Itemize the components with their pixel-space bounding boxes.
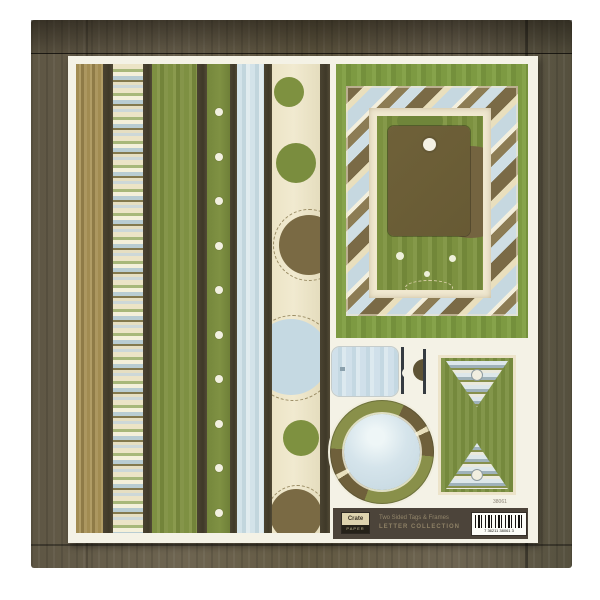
striped-triangle-up: [446, 443, 508, 489]
paper-sheet: 38061 Crate PAPER Two Sided Tags & Frame…: [68, 56, 538, 543]
product-photo: 38061 Crate PAPER Two Sided Tags & Frame…: [0, 0, 600, 600]
wood-top-plank: [31, 20, 572, 54]
white-dot: [449, 255, 456, 262]
stripe-horizontal-band: [113, 64, 143, 533]
stripe-brown: [264, 64, 272, 533]
white-dot: [215, 464, 223, 472]
stripes-panel: [76, 64, 330, 533]
white-dot: [215, 331, 223, 339]
framed-tag-block: [336, 64, 528, 338]
brown-tag: [388, 126, 470, 236]
stripe-green-dotted: [207, 64, 230, 533]
white-dot: [215, 153, 223, 161]
stripe-brown: [230, 64, 237, 533]
barcode: 7 36211 38061 3: [472, 513, 526, 535]
tag-hole: [472, 470, 482, 480]
brand-subname: PAPER: [342, 525, 369, 533]
circle-green: [276, 143, 316, 183]
stripe-tan: [76, 64, 103, 533]
stripe-brown: [143, 64, 152, 533]
stripe-blue: [237, 64, 264, 533]
barcode-digits: 7 36211 38061 3: [472, 528, 526, 533]
tag-hole: [472, 370, 482, 380]
dashed-ellipse: [405, 280, 453, 290]
white-dot: [215, 108, 223, 116]
white-dot: [215, 509, 223, 517]
blue-tag: [332, 347, 398, 396]
stripe-brown: [103, 64, 113, 533]
tag-mark: [340, 367, 345, 371]
tab-divider-line: [423, 349, 426, 394]
white-dot: [396, 252, 404, 260]
label-strip: Crate PAPER Two Sided Tags & Frames LETT…: [333, 508, 528, 539]
collection-name: LETTER COLLECTION: [379, 524, 460, 530]
striped-triangle-down: [446, 361, 508, 407]
barcode-bars: [475, 515, 523, 528]
stripe-cream-circles: [272, 64, 320, 533]
circle-green: [283, 420, 319, 456]
tag-hole: [423, 138, 436, 151]
stripe-brown: [197, 64, 207, 533]
ring-ornament: [330, 400, 434, 504]
wood-seam-bottom: [31, 544, 572, 546]
stripe-brown: [320, 64, 330, 533]
item-number: 38061: [493, 499, 507, 505]
stripe-green: [152, 64, 197, 533]
white-dot: [215, 375, 223, 383]
tab-notch: [402, 368, 412, 378]
white-dot: [215, 242, 223, 250]
white-dot: [215, 420, 223, 428]
product-description: Two Sided Tags & Frames: [379, 515, 449, 521]
brand-logo: Crate PAPER: [342, 513, 369, 533]
ring-center-blue: [344, 414, 420, 490]
frame-inner-panel: [377, 116, 483, 290]
white-dot: [424, 271, 430, 277]
green-triangle-tag: [438, 355, 516, 495]
white-dot: [215, 197, 223, 205]
circle-blue: [272, 319, 320, 395]
brand-name: Crate: [342, 513, 369, 525]
circle-green: [274, 77, 304, 107]
white-dot: [215, 286, 223, 294]
circle-brown: [272, 489, 320, 533]
